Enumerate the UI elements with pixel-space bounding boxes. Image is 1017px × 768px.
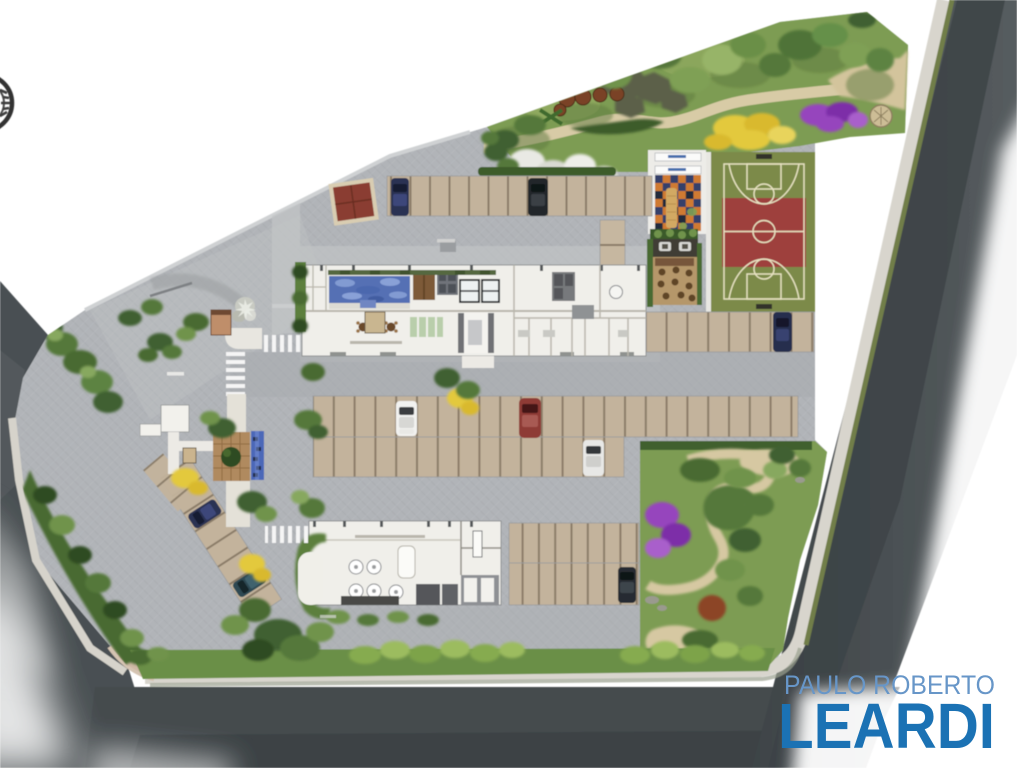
svg-text:LEARDI: LEARDI xyxy=(778,690,995,762)
